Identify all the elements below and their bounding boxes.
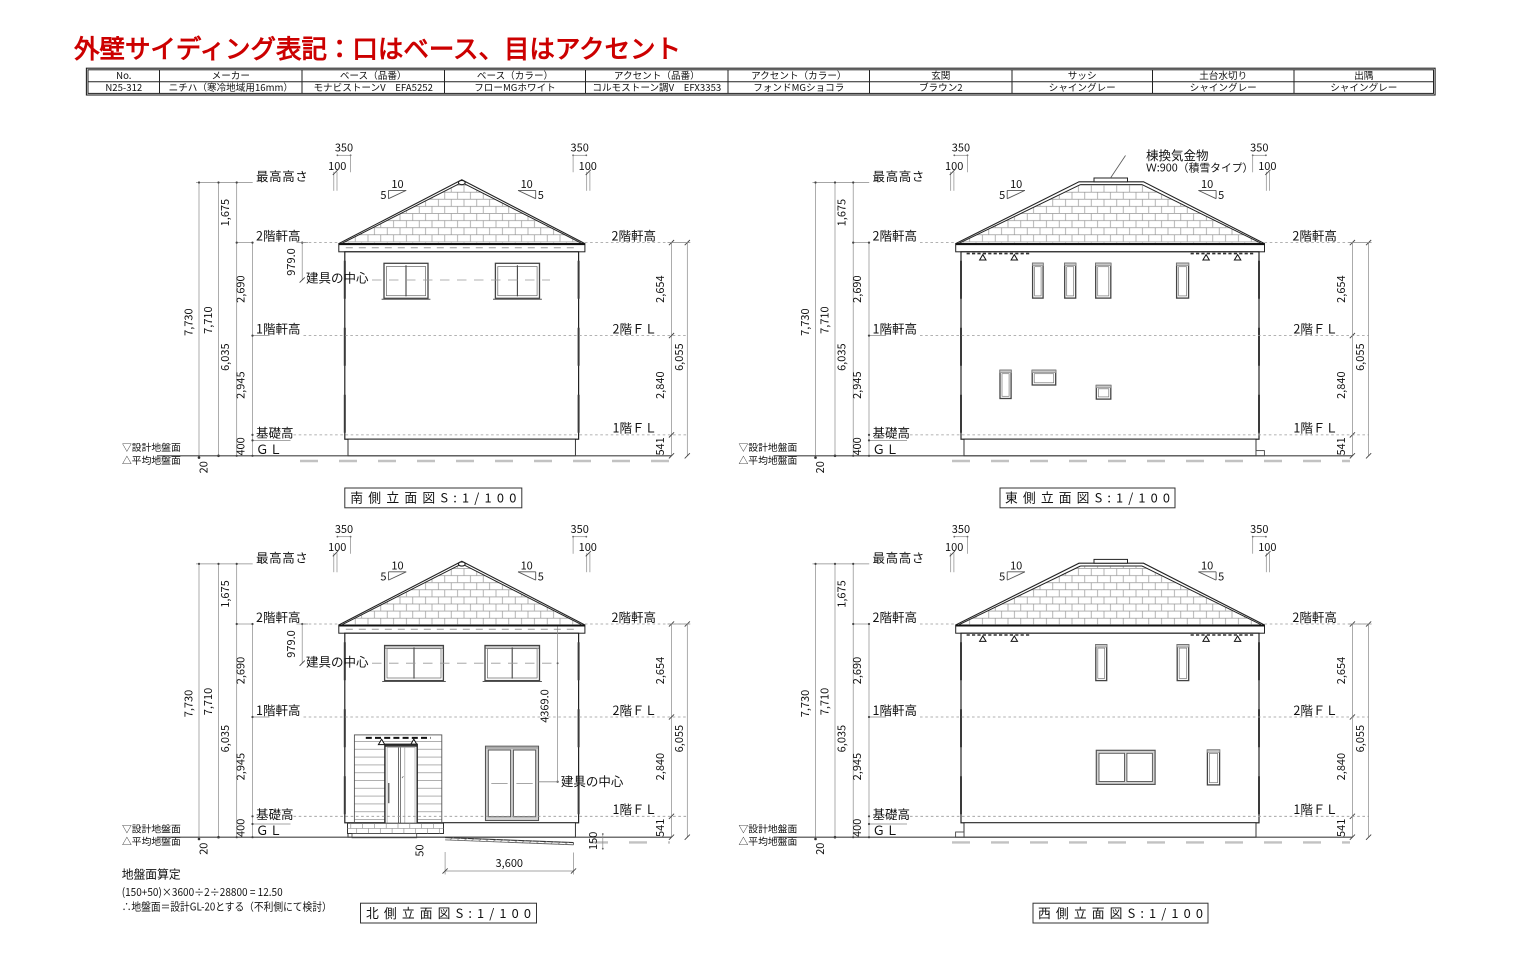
svg-text:6,055: 6,055 [1352,725,1368,752]
svg-text:2,690: 2,690 [233,275,249,302]
svg-text:2階ＦＬ: 2階ＦＬ [613,700,657,719]
svg-text:4369.0: 4369.0 [536,689,552,723]
svg-text:6,055: 6,055 [671,725,687,752]
svg-text:1,675: 1,675 [217,199,233,226]
svg-text:150: 150 [585,832,601,850]
svg-text:コルモストーン調V EFX3353: コルモストーン調V EFX3353 [592,80,721,94]
svg-text:シャイングレー: シャイングレー [1190,80,1257,94]
svg-text:10: 10 [1201,558,1213,574]
svg-text:541: 541 [1333,819,1349,837]
svg-text:10: 10 [391,558,403,574]
svg-text:6,035: 6,035 [217,725,233,752]
svg-text:△平均地盤面: △平均地盤面 [739,834,798,848]
svg-text:2,654: 2,654 [652,275,668,302]
svg-text:建具の中心: 建具の中心 [306,267,369,286]
svg-text:350: 350 [952,140,970,156]
svg-text:フォンドMGショコラ: フォンドMGショコラ [753,80,844,94]
svg-text:6,035: 6,035 [834,343,850,370]
svg-text:541: 541 [652,437,668,455]
svg-text:20: 20 [196,461,212,473]
svg-text:△平均地盤面: △平均地盤面 [739,453,798,467]
svg-text:建具の中心: 建具の中心 [306,652,369,671]
svg-text:979.0: 979.0 [283,248,299,275]
svg-text:1階軒高: 1階軒高 [256,318,300,337]
svg-text:350: 350 [335,140,353,156]
svg-text:6,035: 6,035 [217,343,233,370]
svg-text:350: 350 [1250,140,1268,156]
svg-text:350: 350 [335,521,353,537]
svg-text:(150+50)×3600÷2÷28800 = 12.50: (150+50)×3600÷2÷28800 = 12.50 [122,884,283,900]
svg-text:5: 5 [999,187,1005,203]
svg-text:2,945: 2,945 [849,753,865,780]
svg-text:100: 100 [1258,158,1276,174]
svg-text:地盤面算定: 地盤面算定 [122,865,181,882]
svg-text:10: 10 [521,558,533,574]
svg-text:モナビストーンV EFA5252: モナビストーンV EFA5252 [313,80,432,94]
svg-text:1階軒高: 1階軒高 [256,700,300,719]
svg-text:400: 400 [849,819,865,837]
svg-text:6,035: 6,035 [834,725,850,752]
svg-text:外壁サイディング表記：口はベース、目はアクセント: 外壁サイディング表記：口はベース、目はアクセント [73,29,681,66]
svg-text:1,675: 1,675 [834,199,850,226]
svg-text:2,840: 2,840 [1333,753,1349,780]
svg-text:50: 50 [412,844,428,856]
svg-text:2階軒高: 2階軒高 [256,225,300,244]
svg-text:400: 400 [233,437,249,455]
svg-text:2,690: 2,690 [849,657,865,684]
svg-text:7,730: 7,730 [181,690,197,717]
svg-text:7,710: 7,710 [817,306,833,333]
svg-text:1階ＦＬ: 1階ＦＬ [613,418,657,437]
svg-text:2,840: 2,840 [652,753,668,780]
svg-text:7,710: 7,710 [200,306,216,333]
svg-text:2階軒高: 2階軒高 [256,607,300,626]
svg-text:350: 350 [952,521,970,537]
svg-text:2階軒高: 2階軒高 [1292,607,1336,626]
svg-text:350: 350 [571,140,589,156]
svg-text:2階軒高: 2階軒高 [612,225,656,244]
svg-text:最高高さ: 最高高さ [873,547,925,566]
svg-text:ＧＬ: ＧＬ [873,439,900,458]
svg-text:2,690: 2,690 [849,275,865,302]
svg-text:5: 5 [538,568,544,584]
svg-text:100: 100 [1258,539,1276,555]
svg-text:シャイングレー: シャイングレー [1330,80,1397,94]
svg-text:5: 5 [538,187,544,203]
svg-text:100: 100 [579,539,597,555]
svg-text:100: 100 [579,158,597,174]
svg-text:2,654: 2,654 [1333,275,1349,302]
svg-text:N25-312: N25-312 [105,80,142,94]
svg-text:7,730: 7,730 [797,690,813,717]
svg-text:20: 20 [812,843,828,855]
svg-text:ＧＬ: ＧＬ [873,820,900,839]
svg-text:350: 350 [1250,521,1268,537]
svg-text:2,690: 2,690 [233,657,249,684]
svg-text:350: 350 [571,521,589,537]
svg-text:5: 5 [380,187,386,203]
svg-text:5: 5 [1218,187,1224,203]
svg-text:2階軒高: 2階軒高 [612,607,656,626]
svg-text:10: 10 [521,176,533,192]
svg-text:ＧＬ: ＧＬ [256,439,283,458]
svg-text:北側立面図S:1/100: 北側立面図S:1/100 [366,903,531,922]
svg-text:5: 5 [1218,568,1224,584]
svg-text:シャイングレー: シャイングレー [1049,80,1116,94]
svg-text:Ｗ:900（積雪タイプ）: Ｗ:900（積雪タイプ） [1146,160,1253,176]
svg-text:2階軒高: 2階軒高 [873,225,917,244]
svg-text:最高高さ: 最高高さ [256,166,308,185]
svg-text:最高高さ: 最高高さ [873,166,925,185]
svg-text:20: 20 [196,843,212,855]
svg-text:ＧＬ: ＧＬ [256,820,283,839]
svg-text:1階軒高: 1階軒高 [873,318,917,337]
svg-text:6,055: 6,055 [1352,343,1368,370]
svg-text:979.0: 979.0 [283,630,299,657]
svg-text:541: 541 [1333,437,1349,455]
svg-text:2階ＦＬ: 2階ＦＬ [1293,318,1337,337]
svg-text:2階軒高: 2階軒高 [1292,225,1336,244]
svg-text:△平均地盤面: △平均地盤面 [122,834,181,848]
svg-text:フローMGホワイト: フローMGホワイト [474,80,556,94]
svg-text:10: 10 [1201,176,1213,192]
svg-text:1階軒高: 1階軒高 [873,700,917,719]
svg-text:∴地盤面＝設計GL-20とする（不利側にて検討）: ∴地盤面＝設計GL-20とする（不利側にて検討） [122,899,332,915]
svg-text:2,840: 2,840 [652,371,668,398]
svg-text:2,654: 2,654 [652,657,668,684]
svg-text:20: 20 [812,461,828,473]
svg-text:1階ＦＬ: 1階ＦＬ [613,799,657,818]
svg-text:2階ＦＬ: 2階ＦＬ [613,318,657,337]
svg-text:3,600: 3,600 [496,855,523,871]
svg-text:10: 10 [1010,176,1022,192]
svg-text:7,730: 7,730 [797,308,813,335]
svg-text:5: 5 [380,568,386,584]
svg-text:2階軒高: 2階軒高 [873,607,917,626]
svg-text:400: 400 [849,437,865,455]
svg-text:2,945: 2,945 [233,753,249,780]
svg-text:6,055: 6,055 [671,343,687,370]
svg-text:1階ＦＬ: 1階ＦＬ [1293,418,1337,437]
svg-text:西側立面図S:1/100: 西側立面図S:1/100 [1038,903,1203,922]
svg-text:100: 100 [945,158,963,174]
svg-text:東側立面図S:1/100: 東側立面図S:1/100 [1005,488,1170,507]
svg-text:最高高さ: 最高高さ [256,547,308,566]
svg-text:△平均地盤面: △平均地盤面 [122,453,181,467]
svg-text:10: 10 [391,176,403,192]
svg-text:1階ＦＬ: 1階ＦＬ [1293,799,1337,818]
svg-text:2,945: 2,945 [233,371,249,398]
svg-text:ニチハ（寒冷地域用16mm）: ニチハ（寒冷地域用16mm） [169,80,293,94]
svg-text:100: 100 [328,539,346,555]
svg-text:1,675: 1,675 [834,580,850,607]
svg-text:7,730: 7,730 [181,308,197,335]
svg-text:5: 5 [999,568,1005,584]
svg-text:400: 400 [233,819,249,837]
svg-text:10: 10 [1010,558,1022,574]
svg-text:541: 541 [652,819,668,837]
svg-text:7,710: 7,710 [200,688,216,715]
svg-text:2,945: 2,945 [849,371,865,398]
svg-text:2,654: 2,654 [1333,657,1349,684]
svg-text:100: 100 [945,539,963,555]
svg-text:100: 100 [328,158,346,174]
svg-text:7,710: 7,710 [817,688,833,715]
svg-text:2,840: 2,840 [1333,371,1349,398]
svg-text:1,675: 1,675 [217,580,233,607]
svg-text:ブラウン2: ブラウン2 [919,80,963,94]
svg-text:2階ＦＬ: 2階ＦＬ [1293,700,1337,719]
svg-text:建具の中心: 建具の中心 [561,771,624,790]
svg-text:南側立面図S:1/100: 南側立面図S:1/100 [350,488,516,507]
